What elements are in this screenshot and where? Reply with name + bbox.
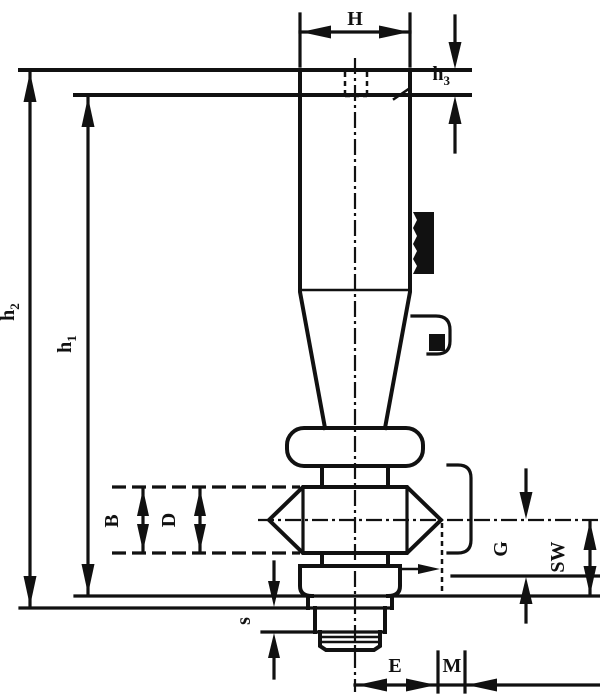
thread-lines: [322, 637, 378, 642]
label-h3: h3: [432, 63, 450, 88]
neck-leader-arrow: [418, 564, 440, 574]
dim-H-arrow-left: [301, 26, 331, 39]
dim-B-arrow-top: [137, 489, 149, 516]
washer-sides: [315, 608, 385, 632]
dim-h1-arrow-top: [82, 97, 95, 127]
base-plate-sides: [308, 596, 392, 608]
dim-G-arrow-bottom: [520, 577, 533, 604]
label-H: H: [347, 8, 363, 30]
label-E: E: [388, 655, 401, 677]
dim-D-arrow-top: [194, 489, 206, 516]
knob-right-side: [385, 70, 410, 428]
callout-mark: [429, 334, 445, 351]
dim-h1: h1: [54, 96, 95, 595]
label-SW: SW: [547, 541, 569, 572]
label-s: s: [233, 617, 255, 625]
part-outline: [20, 70, 600, 650]
label-D: D: [158, 513, 180, 527]
dim-SW: SW: [547, 521, 597, 595]
dim-H-arrow-right: [379, 26, 409, 39]
dim-s-arrow-bottom: [268, 633, 280, 658]
knob-left-side: [300, 70, 325, 428]
dim-h3-arrow-top: [449, 42, 462, 69]
label-G: G: [490, 541, 512, 557]
flange: [300, 566, 400, 596]
dim-h2-arrow-bottom: [24, 576, 37, 606]
dim-M-arrow: [467, 679, 497, 692]
label-h2: h2: [0, 303, 22, 321]
label-M: M: [443, 655, 462, 677]
dim-E-M: E M: [355, 652, 600, 692]
label-h1: h1: [54, 335, 79, 353]
dim-G-arrow-top: [520, 492, 533, 519]
drawing-canvas: H h3 h2 h1 B D G: [0, 0, 600, 700]
dim-E-arrow-right: [406, 679, 436, 692]
dim-h1-arrow-bottom: [82, 564, 95, 594]
technical-drawing: H h3 h2 h1 B D G: [0, 0, 600, 700]
dim-B-arrow-bottom: [137, 524, 149, 551]
dim-h3: h3: [432, 16, 461, 152]
dim-D-arrow-bottom: [194, 524, 206, 551]
dim-s-arrow-top: [268, 581, 280, 607]
dim-h3-arrow-bottom: [449, 96, 462, 124]
knurl-patch: [413, 212, 434, 274]
dim-E-arrow-left: [357, 679, 387, 692]
dim-SW-arrow-top: [584, 521, 597, 550]
side-bracket: [448, 465, 471, 553]
dim-H: H: [300, 8, 410, 66]
label-B: B: [101, 514, 123, 527]
dim-h2: h2: [0, 71, 37, 607]
dim-SW-arrow-bottom: [584, 566, 597, 595]
dim-s: s: [233, 562, 280, 678]
dim-G: G: [490, 470, 533, 622]
dim-h2-arrow-top: [24, 72, 37, 102]
